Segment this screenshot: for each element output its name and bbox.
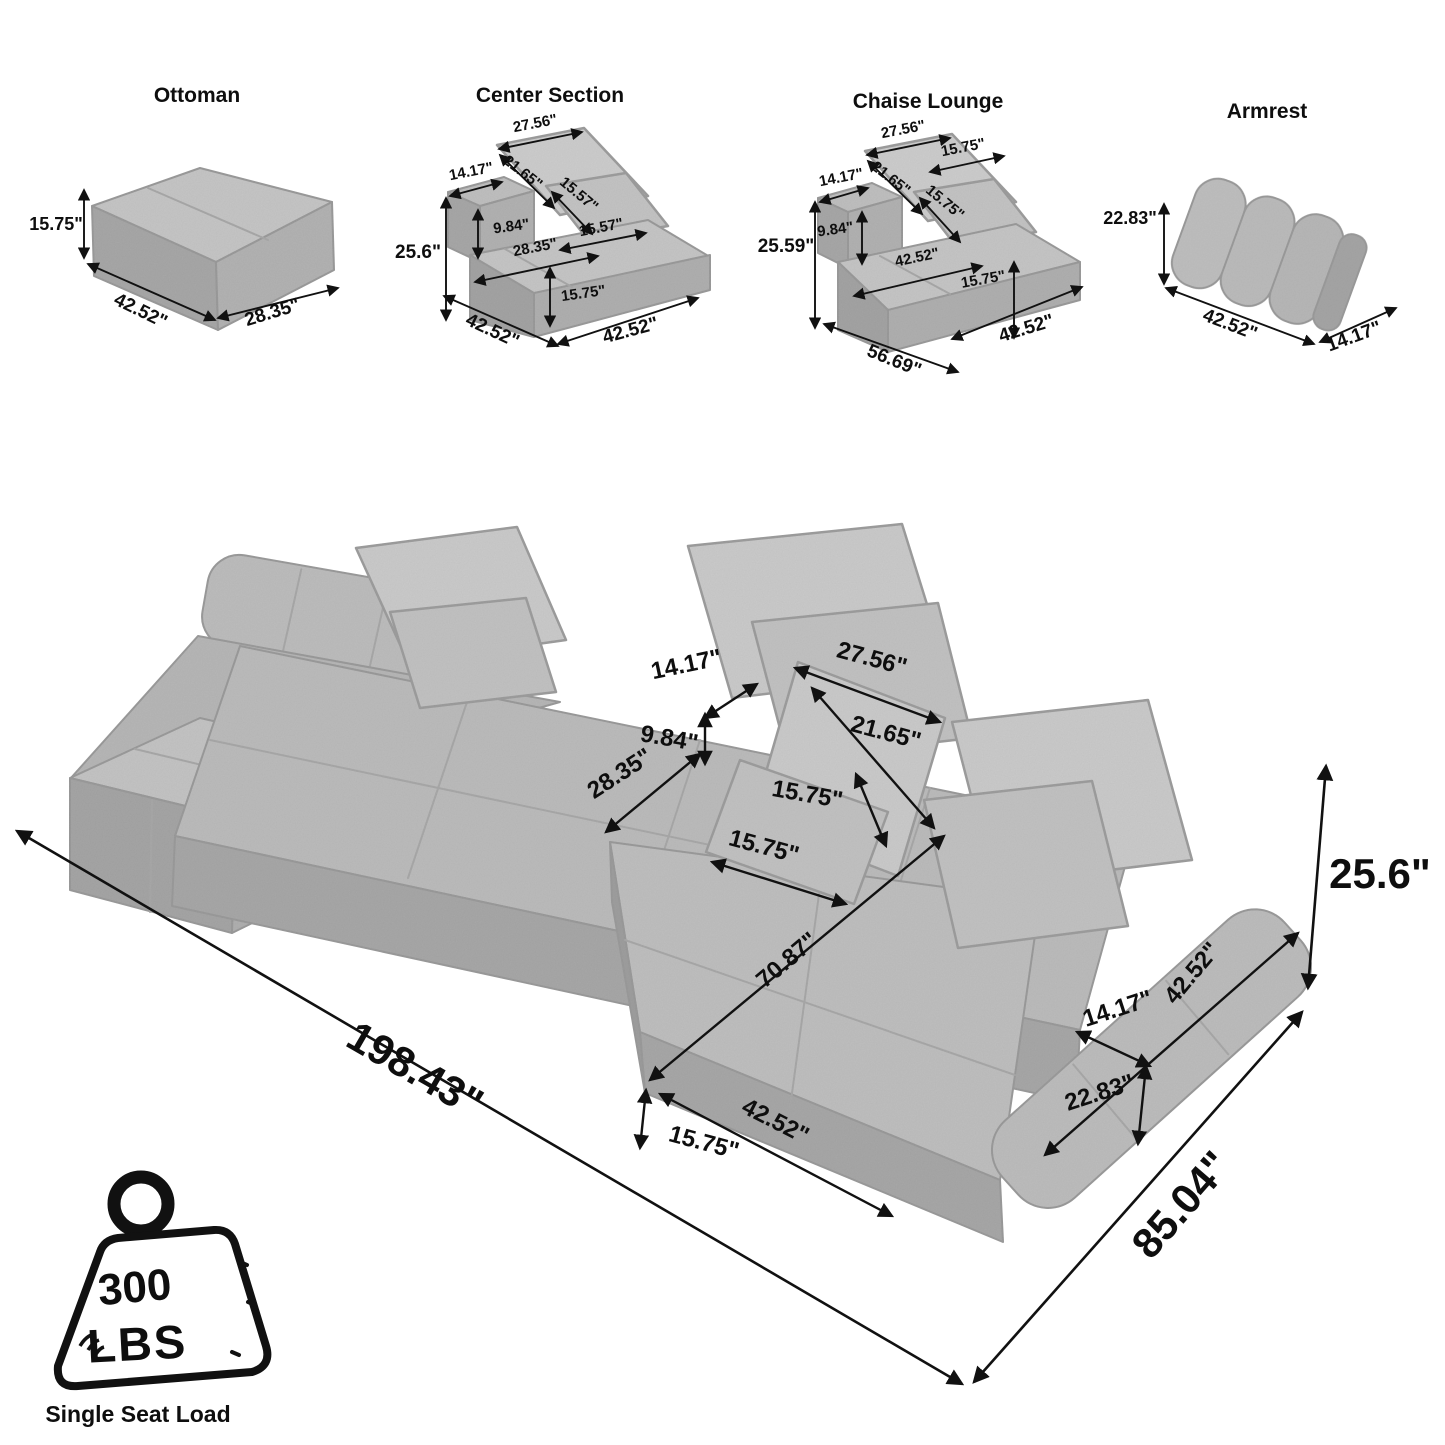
- dim-ar-length: 42.52": [1200, 305, 1260, 345]
- dim-main-total-depth: 85.04": [1122, 1142, 1239, 1267]
- dim-line-total-height: [1308, 766, 1326, 988]
- ms-pillow-1-small: [390, 598, 556, 708]
- dim-main-back-depth: 14.17": [649, 644, 724, 685]
- center-section-figure: Center Section 27.56" 21.65" 14.17" 15.5…: [395, 84, 710, 352]
- armrest-title: Armrest: [1227, 100, 1308, 123]
- chaise-lounge-figure: Chaise Lounge 27.56" 21.65" 15.75" 14.17…: [758, 90, 1082, 381]
- diagram-svg: Ottoman 15.75" 42.52" 28.35" Center Sect…: [0, 0, 1445, 1445]
- weight-handle-icon: [114, 1177, 168, 1231]
- chaise-lounge-title: Chaise Lounge: [853, 90, 1004, 113]
- dim-main-total-length: 198.43": [339, 1012, 491, 1127]
- dim-cs-pillow-top: 27.56": [512, 111, 559, 136]
- dim-ottoman-height: 15.75": [29, 214, 83, 234]
- dim-ch-pillow-top: 27.56": [880, 117, 927, 142]
- load-unit: LBS: [86, 1314, 189, 1372]
- ottoman-title: Ottoman: [154, 84, 240, 107]
- load-caption: Single Seat Load: [45, 1401, 230, 1427]
- dim-ch-height: 25.59": [758, 236, 815, 257]
- product-dimension-diagram: Ottoman 15.75" 42.52" 28.35" Center Sect…: [0, 0, 1445, 1445]
- armrest-drawing: [1165, 172, 1372, 339]
- ottoman-figure: Ottoman 15.75" 42.52" 28.35": [29, 84, 338, 333]
- dim-cs-height: 25.6": [395, 242, 441, 263]
- ms-pillow-4-small: [924, 781, 1128, 948]
- load-value: 300: [96, 1260, 173, 1315]
- center-section-title: Center Section: [476, 84, 624, 107]
- dim-main-total-height: 25.6": [1329, 850, 1431, 897]
- dim-line: [640, 1090, 646, 1148]
- load-badge: 300 LBS Single Seat Load: [45, 1177, 267, 1427]
- dim-ar-height: 22.83": [1103, 208, 1157, 228]
- armrest-figure: Armrest 22.83" 42.52" 14.17": [1103, 100, 1396, 356]
- dim-cs-width-right: 42.52": [601, 313, 661, 348]
